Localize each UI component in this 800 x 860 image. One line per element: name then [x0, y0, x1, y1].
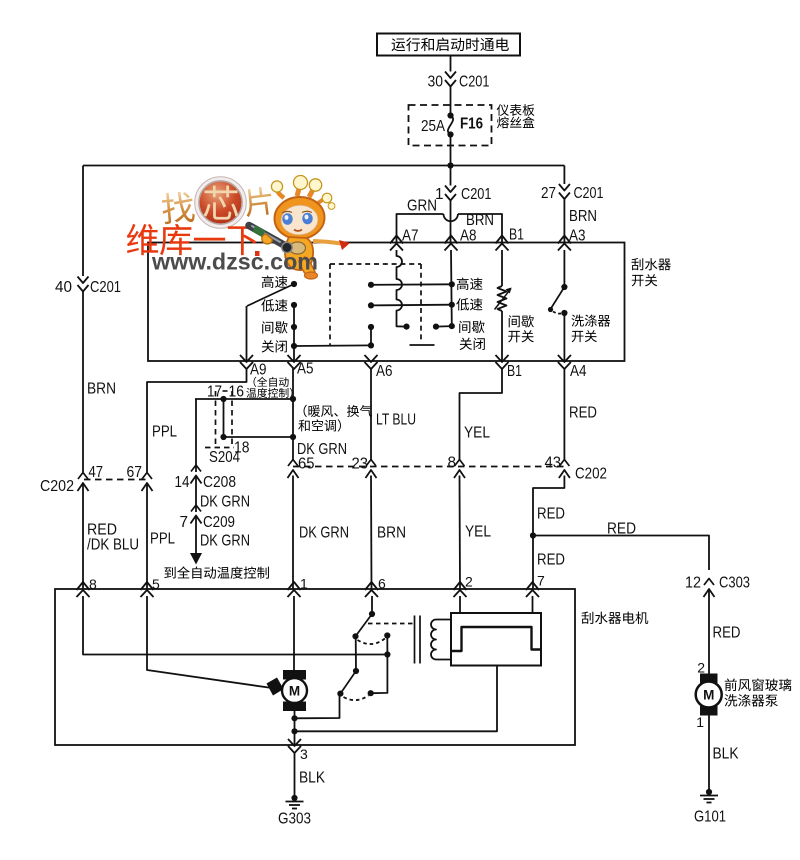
svg-text:G101: G101	[694, 809, 726, 826]
svg-text:23: 23	[352, 456, 369, 473]
svg-text:M: M	[289, 684, 300, 699]
svg-text:RED: RED	[713, 625, 741, 642]
svg-text:DK GRN: DK GRN	[200, 494, 250, 511]
svg-text:40: 40	[55, 279, 72, 296]
svg-text:A7: A7	[402, 228, 419, 245]
svg-text:43: 43	[545, 455, 562, 472]
svg-text:18: 18	[234, 440, 250, 457]
svg-text:/DK BLU: /DK BLU	[87, 537, 139, 554]
svg-text:YEL: YEL	[464, 425, 490, 442]
svg-text:LT BLU: LT BLU	[376, 412, 416, 429]
svg-text:DK GRN: DK GRN	[200, 533, 250, 550]
svg-text:C201: C201	[461, 186, 492, 203]
svg-text:BRN: BRN	[466, 212, 494, 229]
svg-text:C209: C209	[203, 514, 235, 531]
svg-text:A3: A3	[569, 228, 586, 245]
svg-text:C202: C202	[575, 466, 607, 483]
svg-text:C202: C202	[40, 478, 74, 495]
svg-text:DK GRN: DK GRN	[299, 525, 349, 542]
svg-text:B1: B1	[507, 363, 522, 380]
svg-text:25A: 25A	[421, 118, 446, 135]
svg-text:BRN: BRN	[377, 525, 406, 542]
svg-text:5: 5	[152, 576, 160, 592]
svg-text:C208: C208	[203, 474, 236, 491]
svg-text:BLK: BLK	[713, 746, 740, 763]
svg-text:RED: RED	[607, 521, 636, 538]
svg-text:8: 8	[447, 455, 456, 472]
svg-text:27: 27	[541, 185, 556, 202]
svg-text:30: 30	[428, 74, 444, 91]
svg-text:G303: G303	[278, 811, 311, 828]
svg-text:67: 67	[127, 464, 143, 481]
svg-text:PPL: PPL	[152, 424, 177, 441]
svg-text:7: 7	[179, 514, 188, 531]
svg-text:47: 47	[89, 464, 104, 481]
svg-text:YEL: YEL	[465, 524, 491, 541]
svg-text:C201: C201	[459, 74, 490, 91]
svg-text:RED: RED	[537, 506, 565, 523]
svg-text:PPL: PPL	[150, 531, 175, 548]
svg-text:F16: F16	[460, 116, 483, 133]
svg-text:3: 3	[300, 746, 308, 762]
svg-text:7: 7	[537, 573, 545, 589]
svg-text:RED: RED	[537, 552, 565, 569]
svg-text:17: 17	[207, 384, 222, 401]
svg-text:2: 2	[697, 660, 705, 676]
svg-text:M: M	[703, 688, 714, 703]
svg-text:8: 8	[89, 576, 97, 592]
svg-text:B1: B1	[509, 227, 524, 244]
svg-text:C303: C303	[719, 575, 750, 592]
svg-text:A6: A6	[376, 363, 393, 380]
svg-text:12: 12	[685, 575, 701, 592]
svg-text:A8: A8	[460, 228, 477, 245]
svg-text:A5: A5	[297, 361, 314, 378]
svg-text:2: 2	[465, 574, 473, 590]
svg-text:14: 14	[175, 474, 190, 491]
svg-text:BRN: BRN	[569, 208, 597, 225]
svg-text:A9: A9	[250, 362, 267, 379]
svg-text:RED: RED	[569, 405, 597, 422]
svg-text:GRN: GRN	[407, 198, 437, 215]
svg-text:www.dzsc.com: www.dzsc.com	[151, 249, 318, 275]
svg-text:C201: C201	[90, 279, 121, 296]
svg-text:16: 16	[229, 384, 245, 401]
svg-text:C201: C201	[574, 185, 604, 202]
svg-text:BRN: BRN	[87, 381, 116, 398]
svg-text:1: 1	[696, 714, 704, 730]
svg-text:BLK: BLK	[299, 770, 326, 787]
svg-text:A4: A4	[570, 363, 587, 380]
svg-text:65: 65	[298, 456, 315, 473]
